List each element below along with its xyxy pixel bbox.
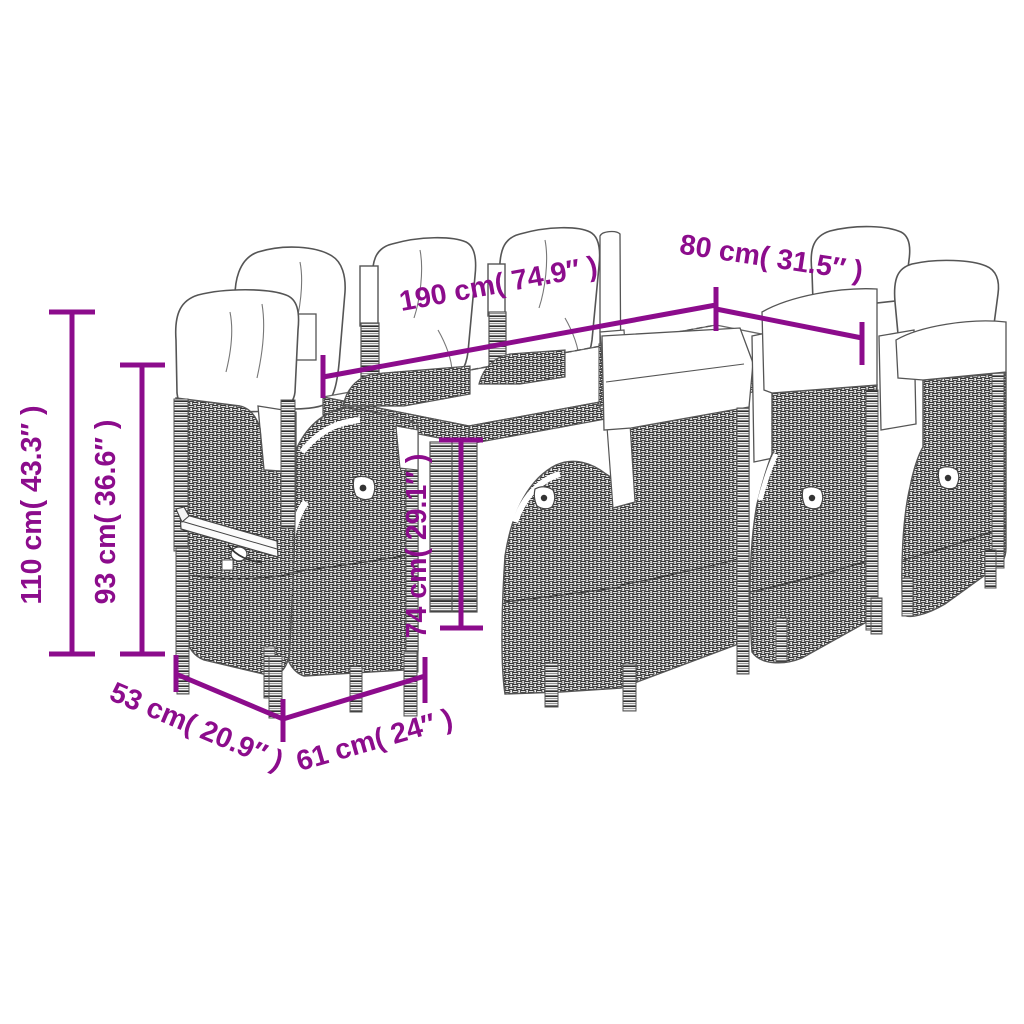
- svg-text:74 cm( 29.1″ ): 74 cm( 29.1″ ): [401, 454, 433, 639]
- svg-text:110 cm( 43.3″ ): 110 cm( 43.3″ ): [16, 405, 48, 604]
- svg-text:93 cm( 36.6″ ): 93 cm( 36.6″ ): [90, 420, 122, 605]
